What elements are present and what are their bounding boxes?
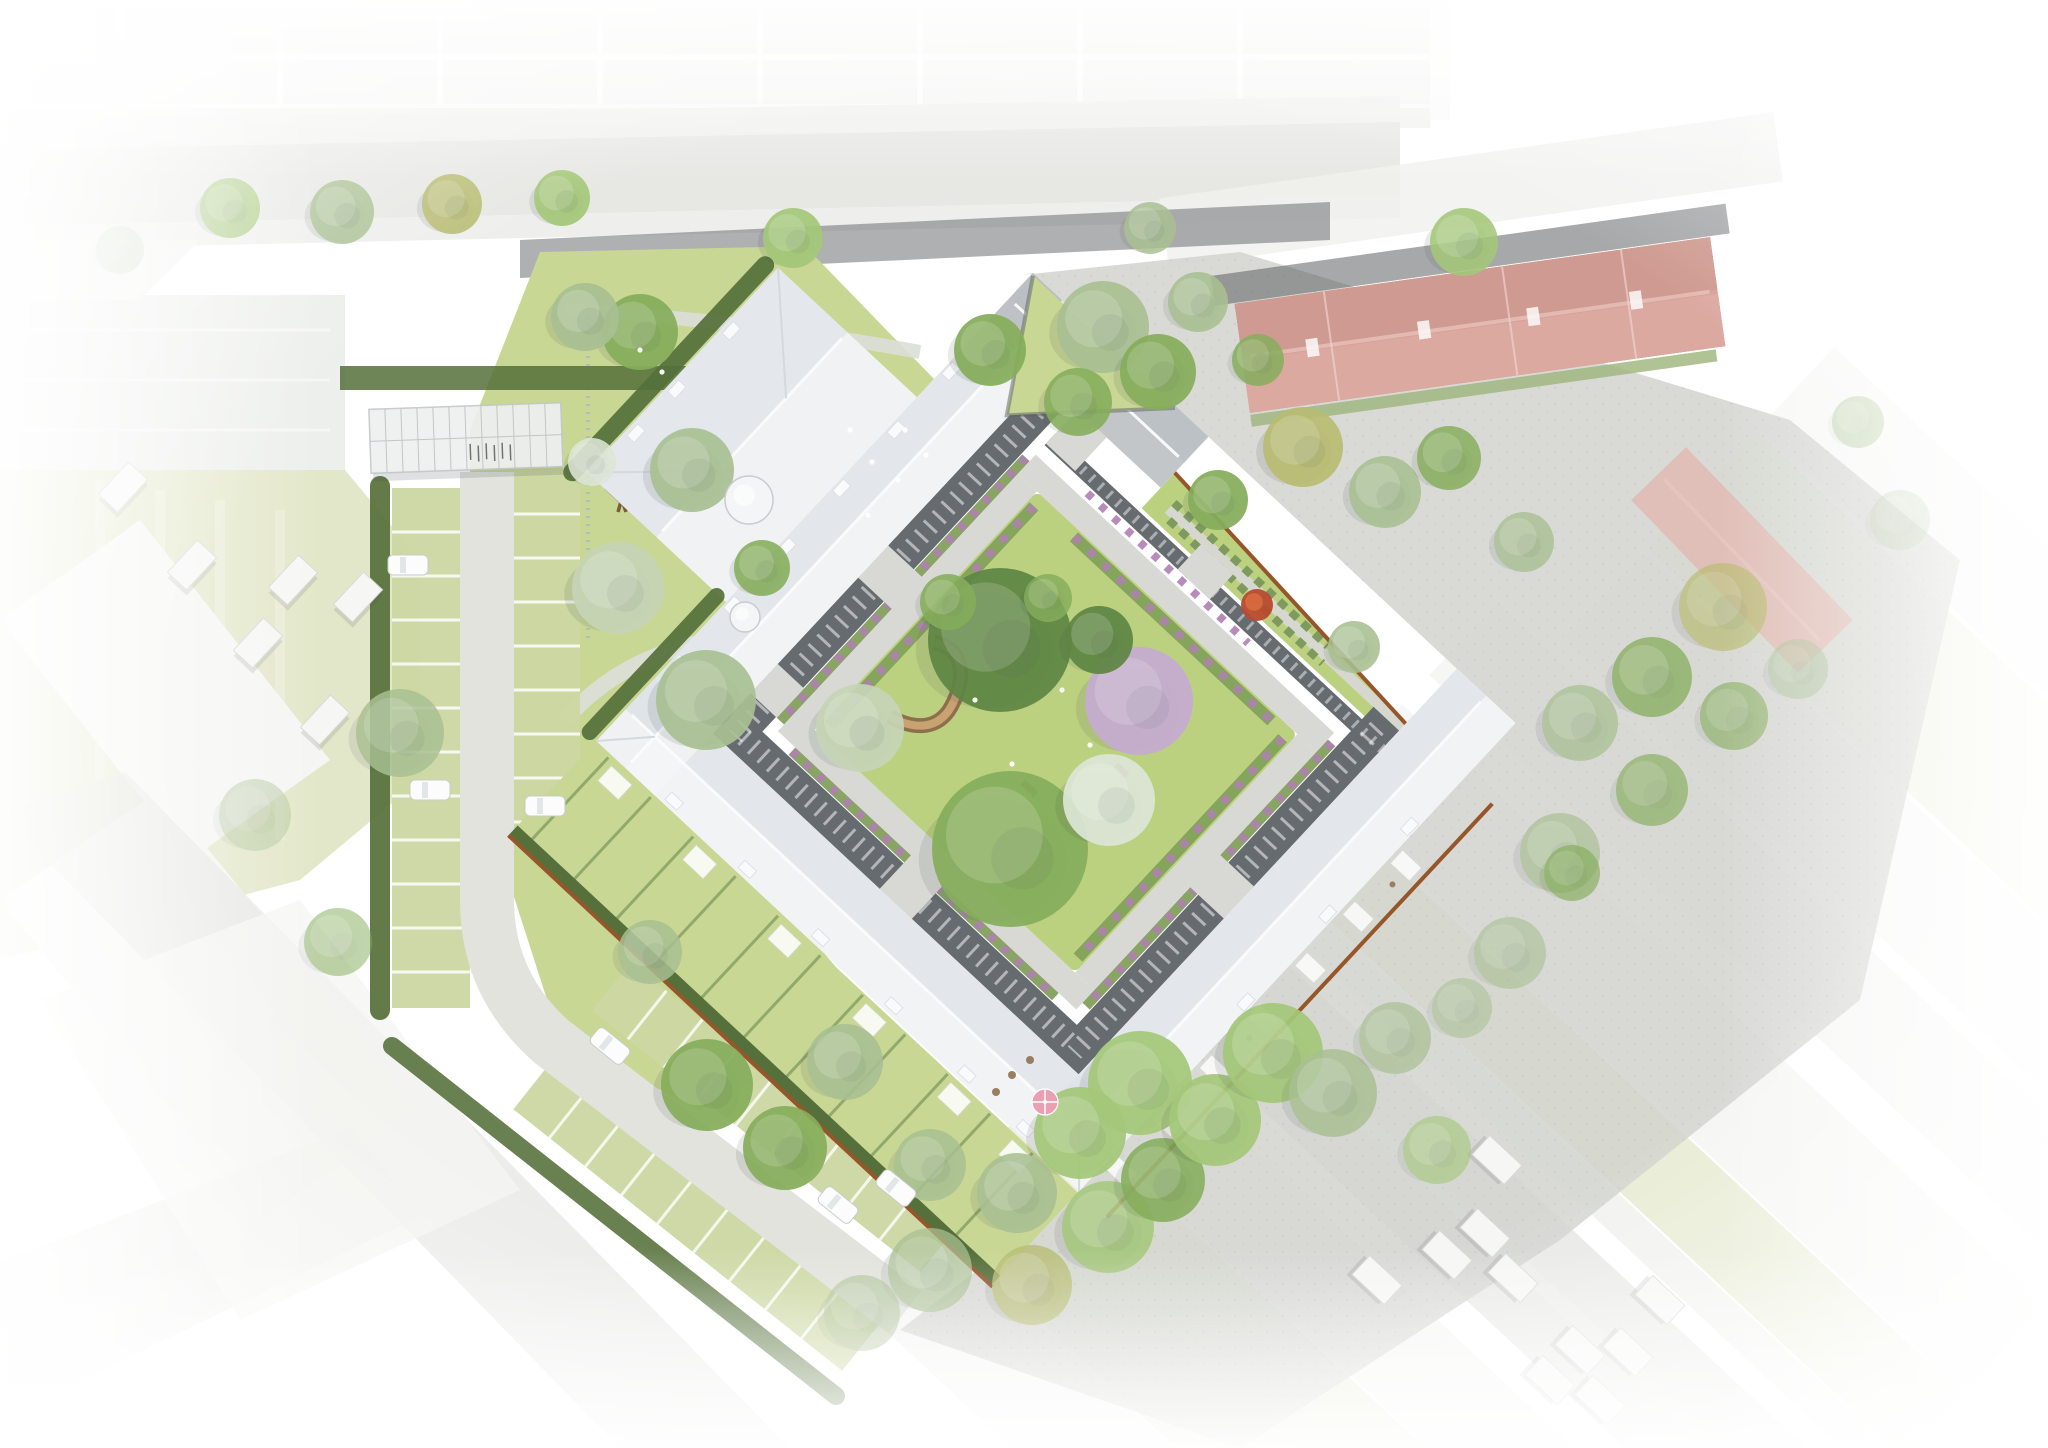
site-plan-canvas [0,0,2048,1448]
vignette [0,0,2048,1448]
site-plan-page [0,0,2048,1448]
